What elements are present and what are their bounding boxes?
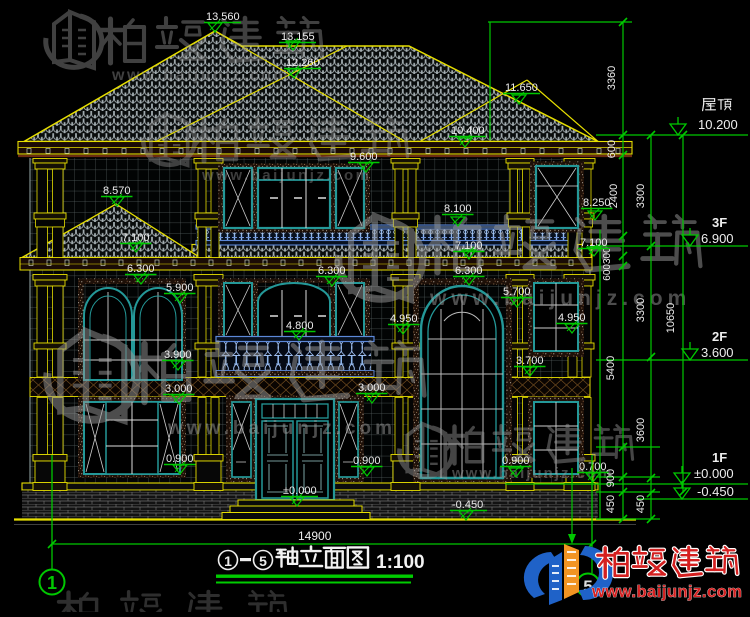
svg-text:1:100: 1:100	[376, 552, 425, 573]
svg-text:±0.000: ±0.000	[283, 485, 317, 497]
svg-text:3.000: 3.000	[358, 382, 386, 394]
svg-text:-0.450: -0.450	[452, 499, 483, 511]
svg-text:www.baijunjz.com: www.baijunjz.com	[591, 583, 742, 601]
svg-text:600: 600	[606, 140, 618, 158]
svg-text:5.700: 5.700	[503, 286, 531, 298]
svg-text:5400: 5400	[605, 356, 617, 380]
svg-text:900: 900	[605, 469, 617, 487]
svg-text:8.100: 8.100	[444, 203, 472, 215]
svg-text:450: 450	[635, 495, 647, 513]
svg-text:3.600: 3.600	[701, 345, 734, 360]
svg-text:1: 1	[224, 553, 232, 569]
svg-text:6.300: 6.300	[318, 265, 346, 277]
svg-text:7.100: 7.100	[122, 232, 150, 244]
svg-text:3.700: 3.700	[516, 355, 544, 367]
svg-text:0.700: 0.700	[579, 461, 607, 473]
svg-text:8.250: 8.250	[583, 197, 611, 209]
svg-text:9.600: 9.600	[350, 151, 378, 163]
svg-text:1F: 1F	[712, 450, 727, 465]
svg-text:3300: 3300	[635, 298, 647, 322]
svg-text:3F: 3F	[712, 215, 727, 230]
svg-text:11.650: 11.650	[505, 82, 538, 94]
svg-text:±0.000: ±0.000	[694, 466, 734, 481]
svg-text:5: 5	[259, 553, 267, 569]
svg-text:www.baijunjz.com: www.baijunjz.com	[201, 167, 371, 184]
svg-text:4.800: 4.800	[286, 320, 314, 332]
svg-text:0.900: 0.900	[502, 455, 530, 467]
svg-text:3.000: 3.000	[165, 383, 193, 395]
svg-text:2F: 2F	[712, 329, 727, 344]
svg-text:10.400: 10.400	[451, 125, 485, 137]
svg-text:4.950: 4.950	[558, 312, 586, 324]
svg-text:3360: 3360	[606, 66, 618, 90]
svg-text:10.200: 10.200	[698, 117, 738, 132]
svg-text:1: 1	[47, 573, 57, 593]
svg-text:0.900: 0.900	[166, 453, 194, 465]
svg-text:www.baijunjz.com: www.baijunjz.com	[111, 67, 290, 84]
svg-text:10650: 10650	[665, 303, 677, 334]
svg-text:www.baijunjz.com: www.baijunjz.com	[429, 287, 691, 310]
svg-text:8.570: 8.570	[103, 185, 131, 197]
svg-text:6.300: 6.300	[127, 263, 155, 275]
svg-text:6.900: 6.900	[701, 231, 734, 246]
svg-text:6.300: 6.300	[455, 265, 483, 277]
svg-text:www.baijunjz.com: www.baijunjz.com	[167, 418, 396, 439]
svg-text:450: 450	[605, 495, 617, 513]
svg-text:14900: 14900	[298, 529, 332, 543]
svg-text:12.260: 12.260	[286, 57, 320, 69]
svg-text:0.900: 0.900	[353, 455, 381, 467]
svg-text:3.900: 3.900	[164, 349, 192, 361]
svg-text:3600: 3600	[635, 418, 647, 442]
svg-text:5.900: 5.900	[166, 282, 194, 294]
svg-text:13.560: 13.560	[206, 11, 240, 23]
svg-text:3300: 3300	[635, 184, 647, 208]
svg-text:600300: 600300	[602, 247, 613, 281]
svg-text:-0.450: -0.450	[697, 484, 734, 499]
svg-text:4.950: 4.950	[390, 313, 418, 325]
